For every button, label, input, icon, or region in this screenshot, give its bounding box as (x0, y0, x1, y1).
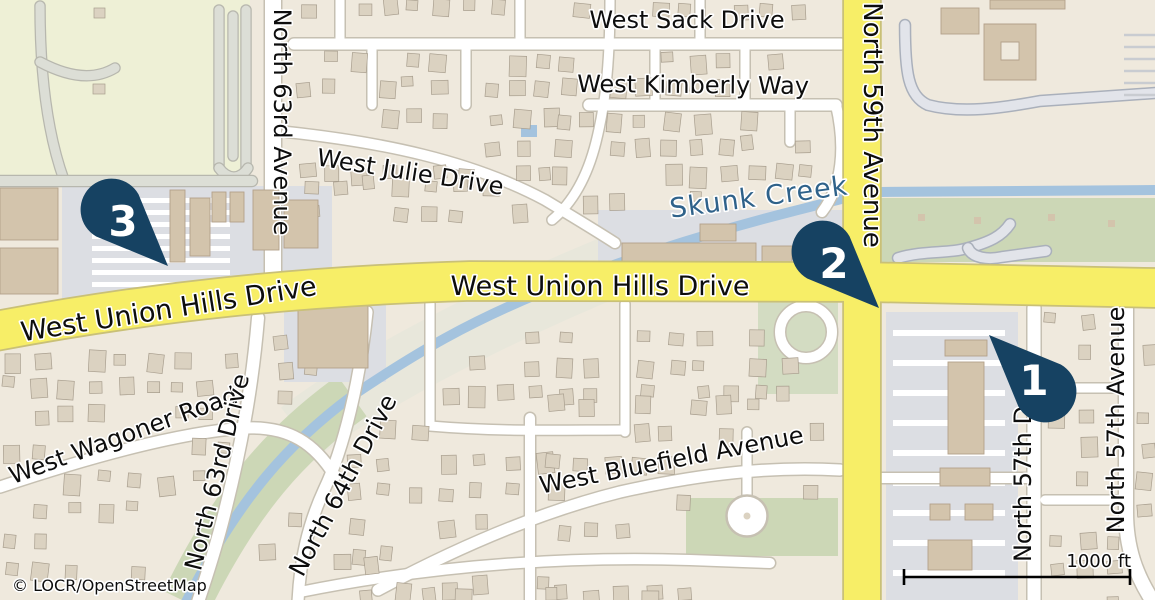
street-label-west-union-hills-drive-center: West Union Hills Drive (451, 271, 750, 302)
street-label-north-57th-avenue: North 57th Avenue (1102, 307, 1130, 534)
marker-2-number: 2 (819, 239, 848, 288)
scale-bar-label: 1000 ft (1066, 551, 1131, 572)
marker-3-number: 3 (108, 197, 137, 246)
street-label-north-59th-avenue: North 59th Avenue (857, 2, 887, 248)
map-canvas[interactable]: West Sack Drive West Kimberly Way West J… (0, 0, 1155, 600)
street-label-north-57th-drive: North 57th D (1009, 406, 1037, 562)
street-label-west-kimberly-way: West Kimberly Way (577, 70, 809, 100)
street-label-north-63rd-avenue: North 63rd Avenue (268, 9, 296, 236)
street-label-west-sack-drive: West Sack Drive (589, 6, 784, 34)
marker-1-number: 1 (1019, 356, 1048, 405)
map-attribution: © LOCR/OpenStreetMap (12, 576, 207, 595)
map-svg[interactable]: West Sack Drive West Kimberly Way West J… (0, 0, 1155, 600)
